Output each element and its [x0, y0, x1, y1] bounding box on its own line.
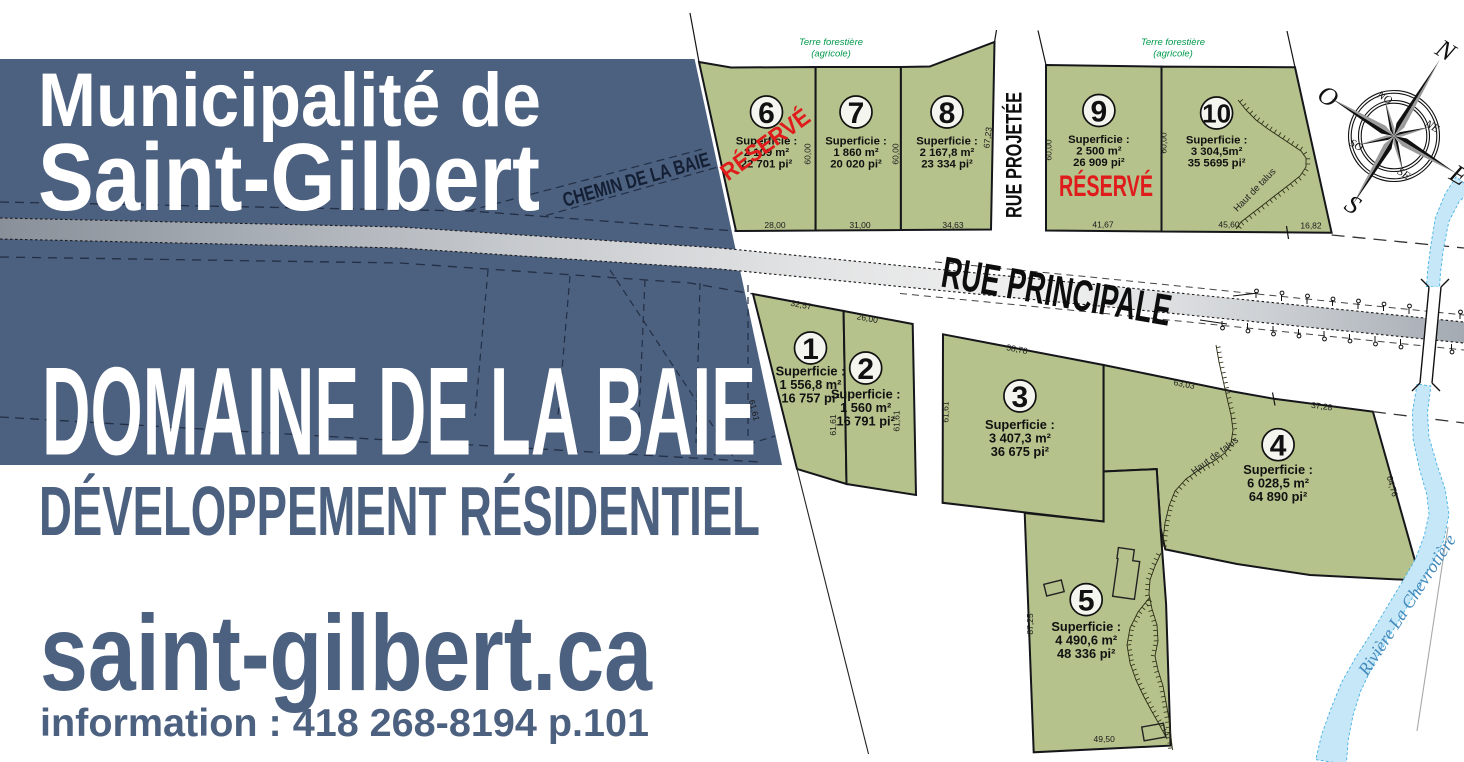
svg-text:48 336 pi²: 48 336 pi² [1057, 646, 1115, 661]
svg-text:31,00: 31,00 [849, 220, 871, 230]
svg-text:41,67: 41,67 [1092, 220, 1114, 230]
svg-text:61,61: 61,61 [828, 414, 838, 436]
svg-text:Terre forestière: Terre forestière [799, 37, 863, 48]
svg-text:RUE PROJETÉE: RUE PROJETÉE [1002, 92, 1027, 218]
svg-text:(agricole): (agricole) [811, 49, 851, 60]
svg-text:8: 8 [939, 97, 956, 130]
svg-text:4: 4 [1270, 430, 1287, 463]
svg-text:Saint-Gilbert: Saint-Gilbert [38, 124, 540, 231]
svg-text:9: 9 [1091, 95, 1108, 128]
svg-text:60,00: 60,00 [803, 143, 813, 165]
svg-text:28,00: 28,00 [764, 220, 786, 230]
svg-text:saint-gilbert.ca: saint-gilbert.ca [40, 592, 653, 713]
svg-text:RÉSERVÉ: RÉSERVÉ [1059, 169, 1153, 203]
svg-text:2 167,8 m²: 2 167,8 m² [920, 147, 975, 159]
svg-text:Superficie :: Superficie : [1186, 135, 1248, 147]
svg-text:10: 10 [1202, 98, 1231, 128]
svg-text:(agricole): (agricole) [1153, 49, 1193, 60]
svg-text:60,00: 60,00 [891, 143, 901, 165]
svg-text:26 909 pi²: 26 909 pi² [1073, 157, 1125, 169]
svg-text:87,25: 87,25 [1025, 613, 1035, 635]
svg-text:5: 5 [1078, 584, 1095, 617]
svg-text:1: 1 [802, 333, 819, 366]
svg-text:2 500 m²: 2 500 m² [1076, 146, 1121, 158]
svg-text:60,00: 60,00 [1044, 139, 1054, 161]
svg-text:49,50: 49,50 [1094, 734, 1116, 744]
svg-text:64 890 pi²: 64 890 pi² [1249, 489, 1307, 504]
svg-text:DÉVELOPPEMENT RÉSIDENTIEL: DÉVELOPPEMENT RÉSIDENTIEL [39, 472, 760, 550]
svg-text:1 860 m²: 1 860 m² [833, 147, 878, 159]
svg-text:20 020 pi²: 20 020 pi² [830, 159, 882, 171]
svg-text:Superficie :: Superficie : [825, 136, 887, 148]
svg-text:2: 2 [857, 353, 874, 386]
svg-text:3: 3 [1012, 381, 1029, 414]
svg-text:35 5695 pi²: 35 5695 pi² [1188, 158, 1246, 170]
svg-text:3 304,5m²: 3 304,5m² [1191, 146, 1243, 158]
svg-text:61,61: 61,61 [892, 410, 902, 432]
svg-text:information : 418 268-8194 p.1: information : 418 268-8194 p.101 [40, 702, 649, 745]
svg-text:7: 7 [848, 97, 865, 130]
svg-text:16,82: 16,82 [1300, 221, 1322, 231]
svg-text:16 791 pi²: 16 791 pi² [837, 414, 895, 429]
svg-text:36 675 pi²: 36 675 pi² [991, 444, 1049, 459]
svg-text:34,63: 34,63 [942, 220, 964, 230]
svg-text:23 334 pi²: 23 334 pi² [921, 159, 973, 171]
svg-text:Terre forestière: Terre forestière [1141, 37, 1205, 48]
svg-text:60,00: 60,00 [1159, 132, 1169, 154]
svg-text:Superficie :: Superficie : [916, 136, 978, 148]
svg-text:61,61: 61,61 [941, 401, 951, 423]
svg-text:Superficie :: Superficie : [1068, 134, 1130, 146]
svg-text:DOMAINE DE LA BAIE: DOMAINE DE LA BAIE [42, 343, 756, 482]
svg-text:45,60: 45,60 [1218, 220, 1240, 230]
